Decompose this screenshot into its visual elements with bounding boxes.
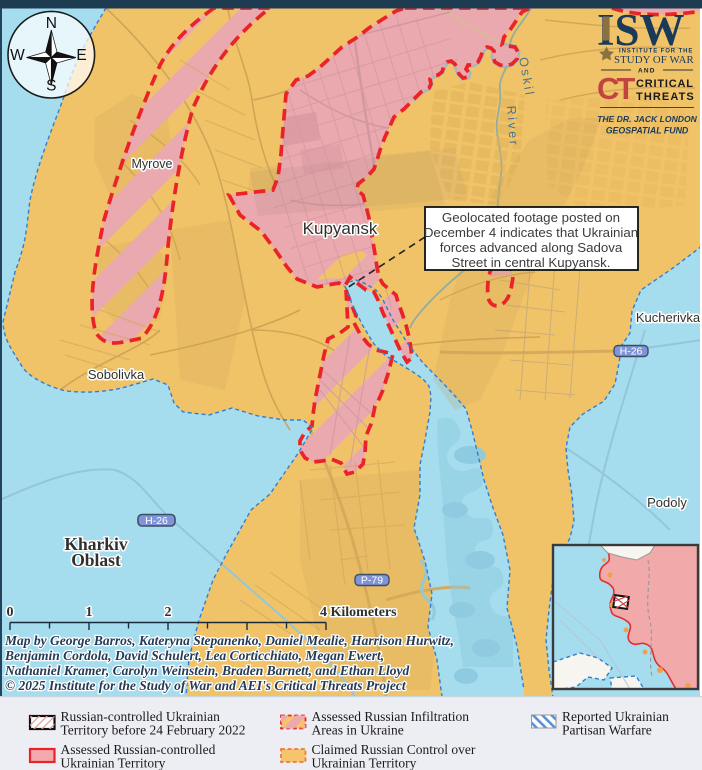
svg-text:forces advanced along Sadova: forces advanced along Sadova — [440, 240, 623, 255]
svg-text:Ukrainian Territory: Ukrainian Territory — [312, 756, 417, 770]
svg-text:STUDY OF WAR: STUDY OF WAR — [614, 54, 694, 66]
svg-text:CT: CT — [597, 71, 635, 106]
svg-text:2: 2 — [165, 605, 172, 620]
svg-text:Oblast: Oblast — [71, 550, 121, 570]
svg-text:Benjamin Cordola, David Schule: Benjamin Cordola, David Schulert, Lea Co… — [4, 648, 384, 663]
svg-text:ISW: ISW — [597, 5, 685, 55]
svg-text:P-79: P-79 — [361, 575, 383, 587]
svg-text:Areas in Ukraine: Areas in Ukraine — [312, 723, 404, 738]
svg-text:River: River — [504, 105, 521, 148]
svg-text:Kucherivka: Kucherivka — [636, 310, 701, 325]
svg-text:Map by George Barros, Kateryna: Map by George Barros, Kateryna Stepanenk… — [4, 633, 454, 648]
svg-text:Podoly: Podoly — [647, 495, 687, 510]
svg-text:W: W — [10, 47, 25, 64]
svg-text:1: 1 — [86, 605, 93, 620]
svg-text:AND: AND — [638, 68, 656, 75]
svg-text:Territory before 24 February 2: Territory before 24 February 2022 — [61, 723, 246, 738]
svg-text:H-26: H-26 — [620, 346, 643, 358]
svg-text:Kupyansk: Kupyansk — [303, 219, 378, 238]
svg-text:Ukrainian Territory: Ukrainian Territory — [61, 756, 166, 770]
svg-text:S: S — [46, 78, 56, 95]
svg-text:E: E — [76, 47, 86, 64]
svg-text:THREATS: THREATS — [636, 91, 695, 103]
svg-text:Myrove: Myrove — [132, 157, 173, 171]
svg-text:Geolocated footage posted on: Geolocated footage posted on — [442, 210, 620, 225]
svg-text:December 4 indicates that Ukra: December 4 indicates that Ukrainian — [424, 225, 638, 240]
svg-text:Partisan Warfare: Partisan Warfare — [562, 723, 652, 738]
svg-text:Nathaniel Kramer, Carolyn Wein: Nathaniel Kramer, Carolyn Weinstein, Bra… — [4, 663, 409, 678]
svg-text:0: 0 — [7, 605, 14, 620]
svg-text:Street in central Kupyansk.: Street in central Kupyansk. — [452, 255, 611, 270]
svg-text:THE DR. JACK LONDON: THE DR. JACK LONDON — [597, 114, 698, 124]
svg-text:N: N — [46, 15, 57, 32]
svg-text:GEOSPATIAL FUND: GEOSPATIAL FUND — [606, 126, 689, 136]
svg-text:Sobolivka: Sobolivka — [88, 367, 145, 382]
svg-text:CRITICAL: CRITICAL — [636, 78, 694, 90]
svg-text:© 2025 Institute for the Study: © 2025 Institute for the Study of War an… — [5, 678, 407, 693]
svg-text:4 Kilometers: 4 Kilometers — [320, 605, 397, 620]
svg-text:H-26: H-26 — [145, 515, 168, 527]
